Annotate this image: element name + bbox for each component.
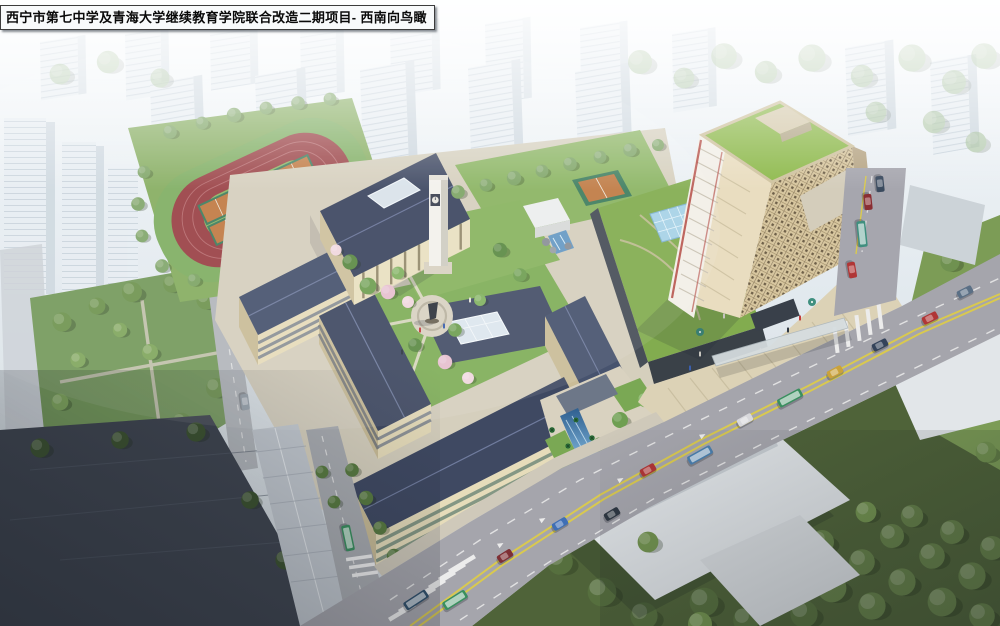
- rendering-canvas: 西宁市第七中学及青海大学继续教育学院联合改造二期项目- 西南向鸟瞰: [0, 0, 1000, 626]
- aerial-rendering: [0, 0, 1000, 626]
- title-caption: 西宁市第七中学及青海大学继续教育学院联合改造二期项目- 西南向鸟瞰: [0, 5, 435, 30]
